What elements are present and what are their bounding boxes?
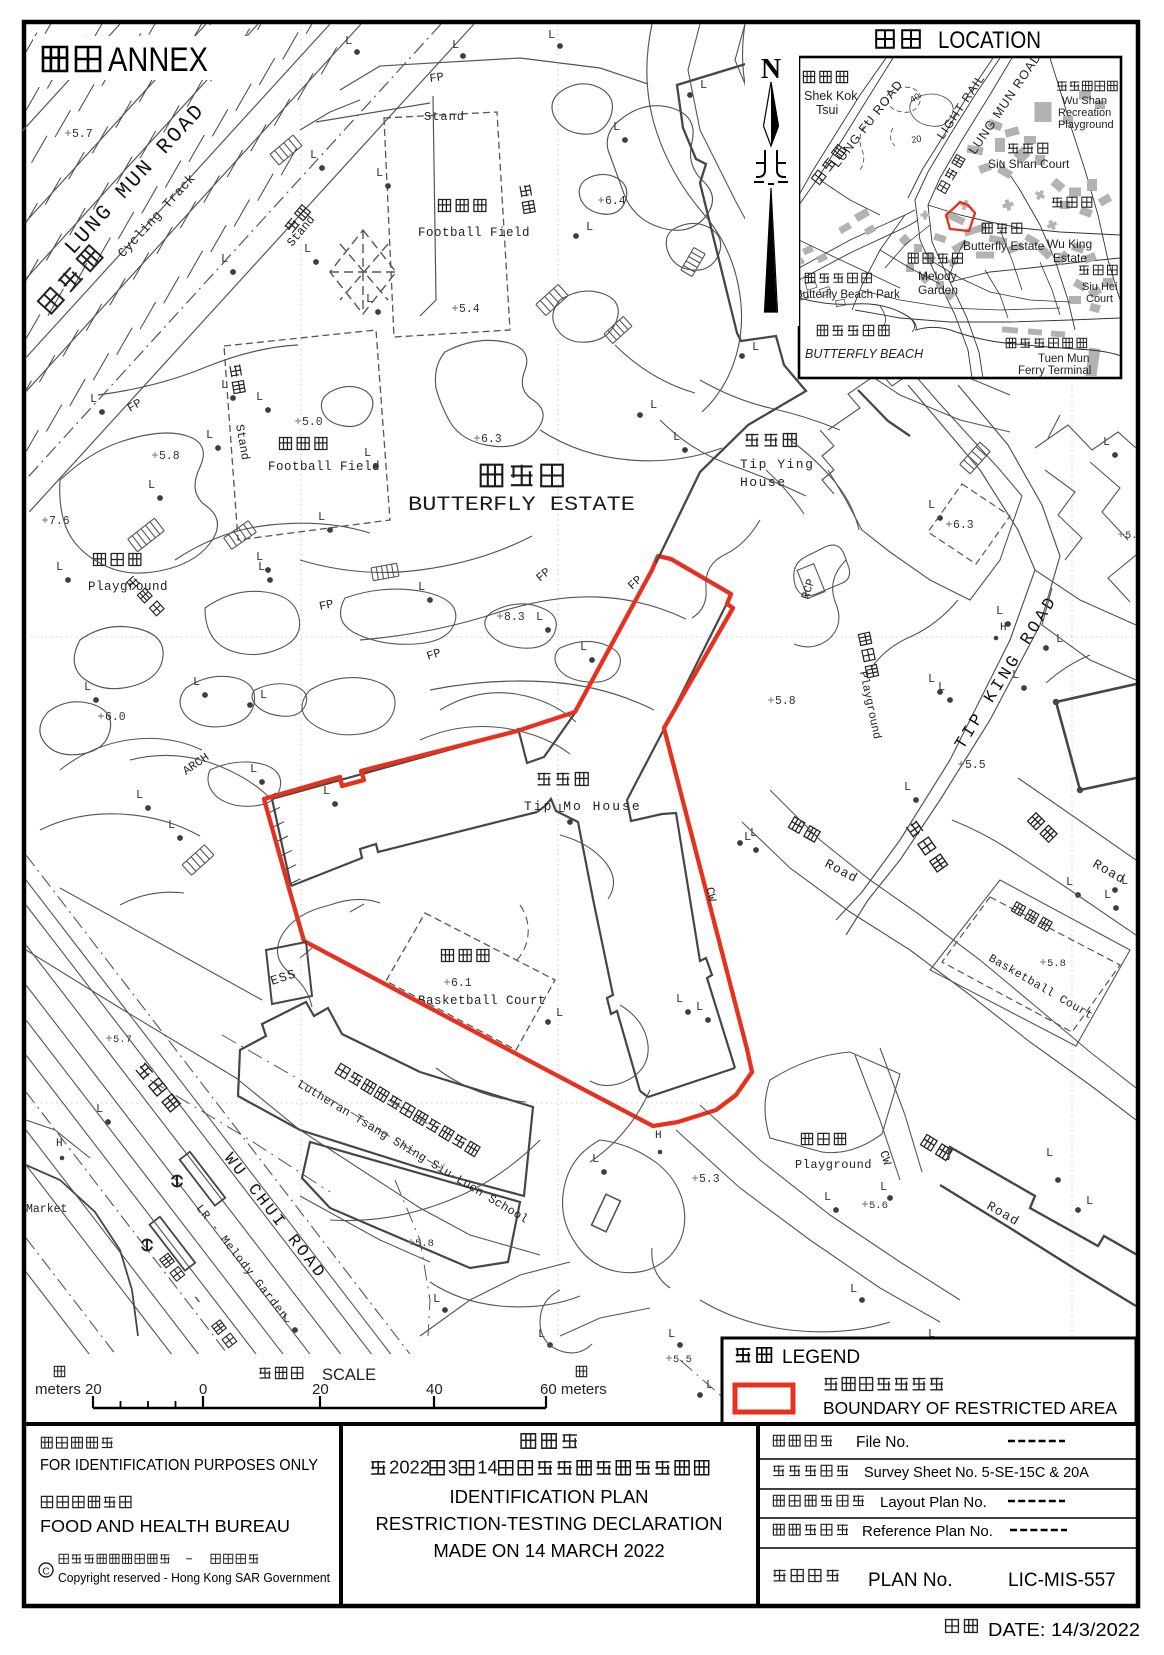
svg-text:FP: FP bbox=[318, 597, 335, 614]
svg-text:H: H bbox=[1000, 622, 1007, 634]
svg-text:L: L bbox=[433, 1292, 440, 1306]
svg-text:L: L bbox=[221, 252, 228, 266]
svg-text:Basketball Court: Basketball Court bbox=[418, 994, 546, 1008]
svg-text:5.5: 5.5 bbox=[673, 1354, 692, 1366]
svg-text:Survey Sheet No. 5-SE-15C: Survey Sheet No. 5-SE-15C & 20A bbox=[864, 1465, 1089, 1481]
svg-text:5.7: 5.7 bbox=[72, 128, 93, 141]
svg-text:Butterfly Estate: Butterfly Estate bbox=[963, 239, 1045, 253]
svg-text:5.7: 5.7 bbox=[113, 1034, 132, 1046]
svg-text:L: L bbox=[366, 292, 373, 306]
svg-text:LOCATION: LOCATION bbox=[938, 27, 1041, 54]
svg-text:L: L bbox=[580, 640, 587, 654]
svg-text:LEGEND: LEGEND bbox=[782, 1347, 860, 1368]
svg-text:L: L bbox=[96, 1102, 103, 1116]
svg-text:L: L bbox=[206, 428, 213, 442]
svg-text:L: L bbox=[928, 498, 935, 512]
svg-text:Shek Kok: Shek Kok bbox=[804, 89, 858, 103]
svg-text:3: 3 bbox=[448, 1456, 458, 1477]
svg-text:L: L bbox=[696, 1000, 703, 1014]
svg-text:L: L bbox=[256, 390, 263, 404]
svg-text:Tip Ying: Tip Ying bbox=[740, 457, 814, 472]
svg-text:meters 20: meters 20 bbox=[35, 1381, 102, 1398]
svg-text:L: L bbox=[904, 780, 911, 794]
svg-text:DATE: 14/3/2022: DATE: 14/3/2022 bbox=[988, 1620, 1140, 1640]
svg-text:RESTRICTION-TESTING DECLARATIO: RESTRICTION-TESTING DECLARATION bbox=[375, 1513, 722, 1534]
svg-text:20: 20 bbox=[911, 133, 923, 145]
svg-text:L: L bbox=[260, 688, 267, 702]
svg-text:L: L bbox=[676, 992, 683, 1006]
svg-text:5.8: 5.8 bbox=[159, 450, 180, 463]
svg-text:FP: FP bbox=[429, 70, 445, 86]
svg-text:L: L bbox=[168, 818, 175, 832]
svg-text:Estate: Estate bbox=[1053, 251, 1087, 265]
svg-text:L: L bbox=[310, 148, 317, 162]
svg-text:Ferry Terminal: Ferry Terminal bbox=[1018, 365, 1091, 377]
svg-text:L: L bbox=[84, 680, 91, 694]
svg-text:L: L bbox=[928, 672, 935, 686]
svg-text:L: L bbox=[418, 580, 425, 594]
svg-text:Siu Shan Court: Siu Shan Court bbox=[988, 157, 1070, 171]
svg-text:Tuen Mun: Tuen Mun bbox=[1038, 353, 1089, 365]
svg-text:L: L bbox=[880, 1180, 887, 1194]
svg-text:5.0: 5.0 bbox=[302, 416, 323, 429]
svg-text:L: L bbox=[304, 242, 311, 256]
svg-text:L: L bbox=[1104, 888, 1111, 902]
svg-text:5.4: 5.4 bbox=[459, 303, 480, 316]
svg-text:6.3: 6.3 bbox=[953, 519, 974, 532]
svg-text:N: N bbox=[761, 54, 781, 85]
svg-text:7.6: 7.6 bbox=[49, 515, 70, 528]
svg-text:H: H bbox=[56, 1138, 63, 1150]
svg-text:L: L bbox=[452, 38, 459, 52]
svg-text:L: L bbox=[323, 784, 330, 798]
svg-text:L: L bbox=[56, 560, 63, 574]
svg-text:5.3: 5.3 bbox=[699, 1173, 720, 1186]
svg-text:L: L bbox=[364, 446, 371, 460]
svg-text:60 meters: 60 meters bbox=[540, 1381, 607, 1398]
svg-text:5.8: 5.8 bbox=[775, 695, 796, 708]
svg-text:14: 14 bbox=[477, 1456, 497, 1477]
svg-text:L: L bbox=[850, 1282, 857, 1296]
svg-text:L: L bbox=[376, 166, 383, 180]
svg-text:L: L bbox=[221, 378, 228, 392]
svg-text:Court: Court bbox=[1086, 293, 1113, 305]
svg-text:Reference Plan No.: Reference Plan No. bbox=[862, 1523, 993, 1540]
svg-text:L: L bbox=[673, 430, 680, 444]
svg-text:PLAN No.: PLAN No. bbox=[868, 1570, 952, 1591]
svg-text:ANNEX: ANNEX bbox=[108, 41, 208, 79]
svg-text:Playground: Playground bbox=[1058, 119, 1114, 131]
svg-text:Wu Shan: Wu Shan bbox=[1062, 95, 1107, 107]
svg-text:L: L bbox=[258, 560, 265, 574]
svg-text:L: L bbox=[586, 220, 593, 234]
svg-text:Playground: Playground bbox=[88, 580, 168, 594]
svg-text:L: L bbox=[700, 78, 707, 92]
svg-text:L: L bbox=[1086, 1194, 1093, 1208]
svg-text:BOUNDARY OF RESTRICTED AREA: BOUNDARY OF RESTRICTED AREA bbox=[823, 1398, 1117, 1418]
svg-text:Tip Mo House: Tip Mo House bbox=[524, 799, 642, 814]
svg-text:Playground: Playground bbox=[795, 1158, 872, 1172]
svg-text:L: L bbox=[824, 1190, 831, 1204]
svg-text:MADE ON 14 MARCH 2022: MADE ON 14 MARCH 2022 bbox=[433, 1540, 664, 1561]
svg-text:H: H bbox=[655, 1130, 662, 1142]
svg-text:Stand: Stand bbox=[424, 110, 465, 124]
svg-text:BUTTERFLY BEACH: BUTTERFLY BEACH bbox=[805, 347, 924, 361]
svg-text:Market: Market bbox=[26, 1203, 67, 1216]
svg-text:L: L bbox=[345, 34, 352, 48]
svg-text:6.0: 6.0 bbox=[105, 711, 126, 724]
svg-text:L: L bbox=[613, 120, 620, 134]
svg-text:L: L bbox=[650, 398, 657, 412]
svg-text:5.8: 5.8 bbox=[415, 1238, 434, 1250]
svg-text:L: L bbox=[938, 680, 945, 694]
svg-text:5.6: 5.6 bbox=[869, 1200, 888, 1212]
svg-text:Garden: Garden bbox=[918, 283, 958, 297]
svg-text:FOOD AND HEALTH BUREAU: FOOD AND HEALTH BUREAU bbox=[40, 1516, 290, 1536]
svg-text:40: 40 bbox=[426, 1381, 443, 1398]
svg-text:Football Field: Football Field bbox=[268, 460, 380, 474]
svg-text:L: L bbox=[90, 392, 97, 406]
svg-text:L: L bbox=[668, 1327, 675, 1341]
svg-text:5.8: 5.8 bbox=[1047, 958, 1066, 970]
svg-text:LIC-MIS-557: LIC-MIS-557 bbox=[1008, 1570, 1116, 1591]
svg-text:L: L bbox=[548, 28, 555, 42]
svg-text:L: L bbox=[592, 1152, 599, 1166]
svg-text:BUTTERFLY ESTATE: BUTTERFLY ESTATE bbox=[408, 494, 635, 517]
svg-text:C: C bbox=[42, 1567, 49, 1578]
svg-text:Recreation: Recreation bbox=[1058, 107, 1111, 119]
svg-text:0: 0 bbox=[199, 1381, 207, 1398]
svg-text:L: L bbox=[996, 604, 1003, 618]
svg-text:Wu King: Wu King bbox=[1047, 237, 1092, 251]
svg-text:L: L bbox=[706, 1378, 713, 1392]
svg-text:Siu Hei: Siu Hei bbox=[1082, 281, 1117, 293]
svg-text:L: L bbox=[556, 1006, 563, 1020]
svg-text:L: L bbox=[250, 762, 257, 776]
svg-text:Butterfly Beach Park: Butterfly Beach Park bbox=[795, 289, 900, 301]
svg-text:Copyright reserved - Hong Kong: Copyright reserved - Hong Kong SAR Gover… bbox=[58, 1570, 330, 1585]
svg-text:File No.: File No. bbox=[856, 1434, 909, 1451]
svg-text:L: L bbox=[752, 340, 759, 354]
svg-text:Layout Plan No.: Layout Plan No. bbox=[880, 1494, 987, 1511]
svg-text:SCALE: SCALE bbox=[322, 1366, 376, 1384]
svg-text:L: L bbox=[1046, 1146, 1053, 1160]
svg-text:Melody: Melody bbox=[918, 269, 957, 283]
svg-text:Tsui: Tsui bbox=[816, 103, 838, 117]
svg-text:IDENTIFICATION PLAN: IDENTIFICATION PLAN bbox=[449, 1486, 648, 1507]
svg-text:5.5: 5.5 bbox=[965, 759, 986, 772]
svg-text:FOR IDENTIFICATION PURPOSES ON: FOR IDENTIFICATION PURPOSES ONLY bbox=[40, 1457, 318, 1474]
svg-text:L: L bbox=[1066, 875, 1073, 889]
svg-text:2022: 2022 bbox=[389, 1456, 430, 1477]
svg-text:L: L bbox=[318, 510, 325, 524]
svg-text:20: 20 bbox=[312, 1381, 329, 1398]
svg-text:L: L bbox=[536, 610, 543, 624]
svg-text:L: L bbox=[148, 478, 155, 492]
svg-text:8.3: 8.3 bbox=[504, 611, 525, 624]
svg-text:L: L bbox=[136, 788, 143, 802]
svg-text:L: L bbox=[193, 675, 200, 689]
svg-text:6.1: 6.1 bbox=[451, 977, 472, 990]
